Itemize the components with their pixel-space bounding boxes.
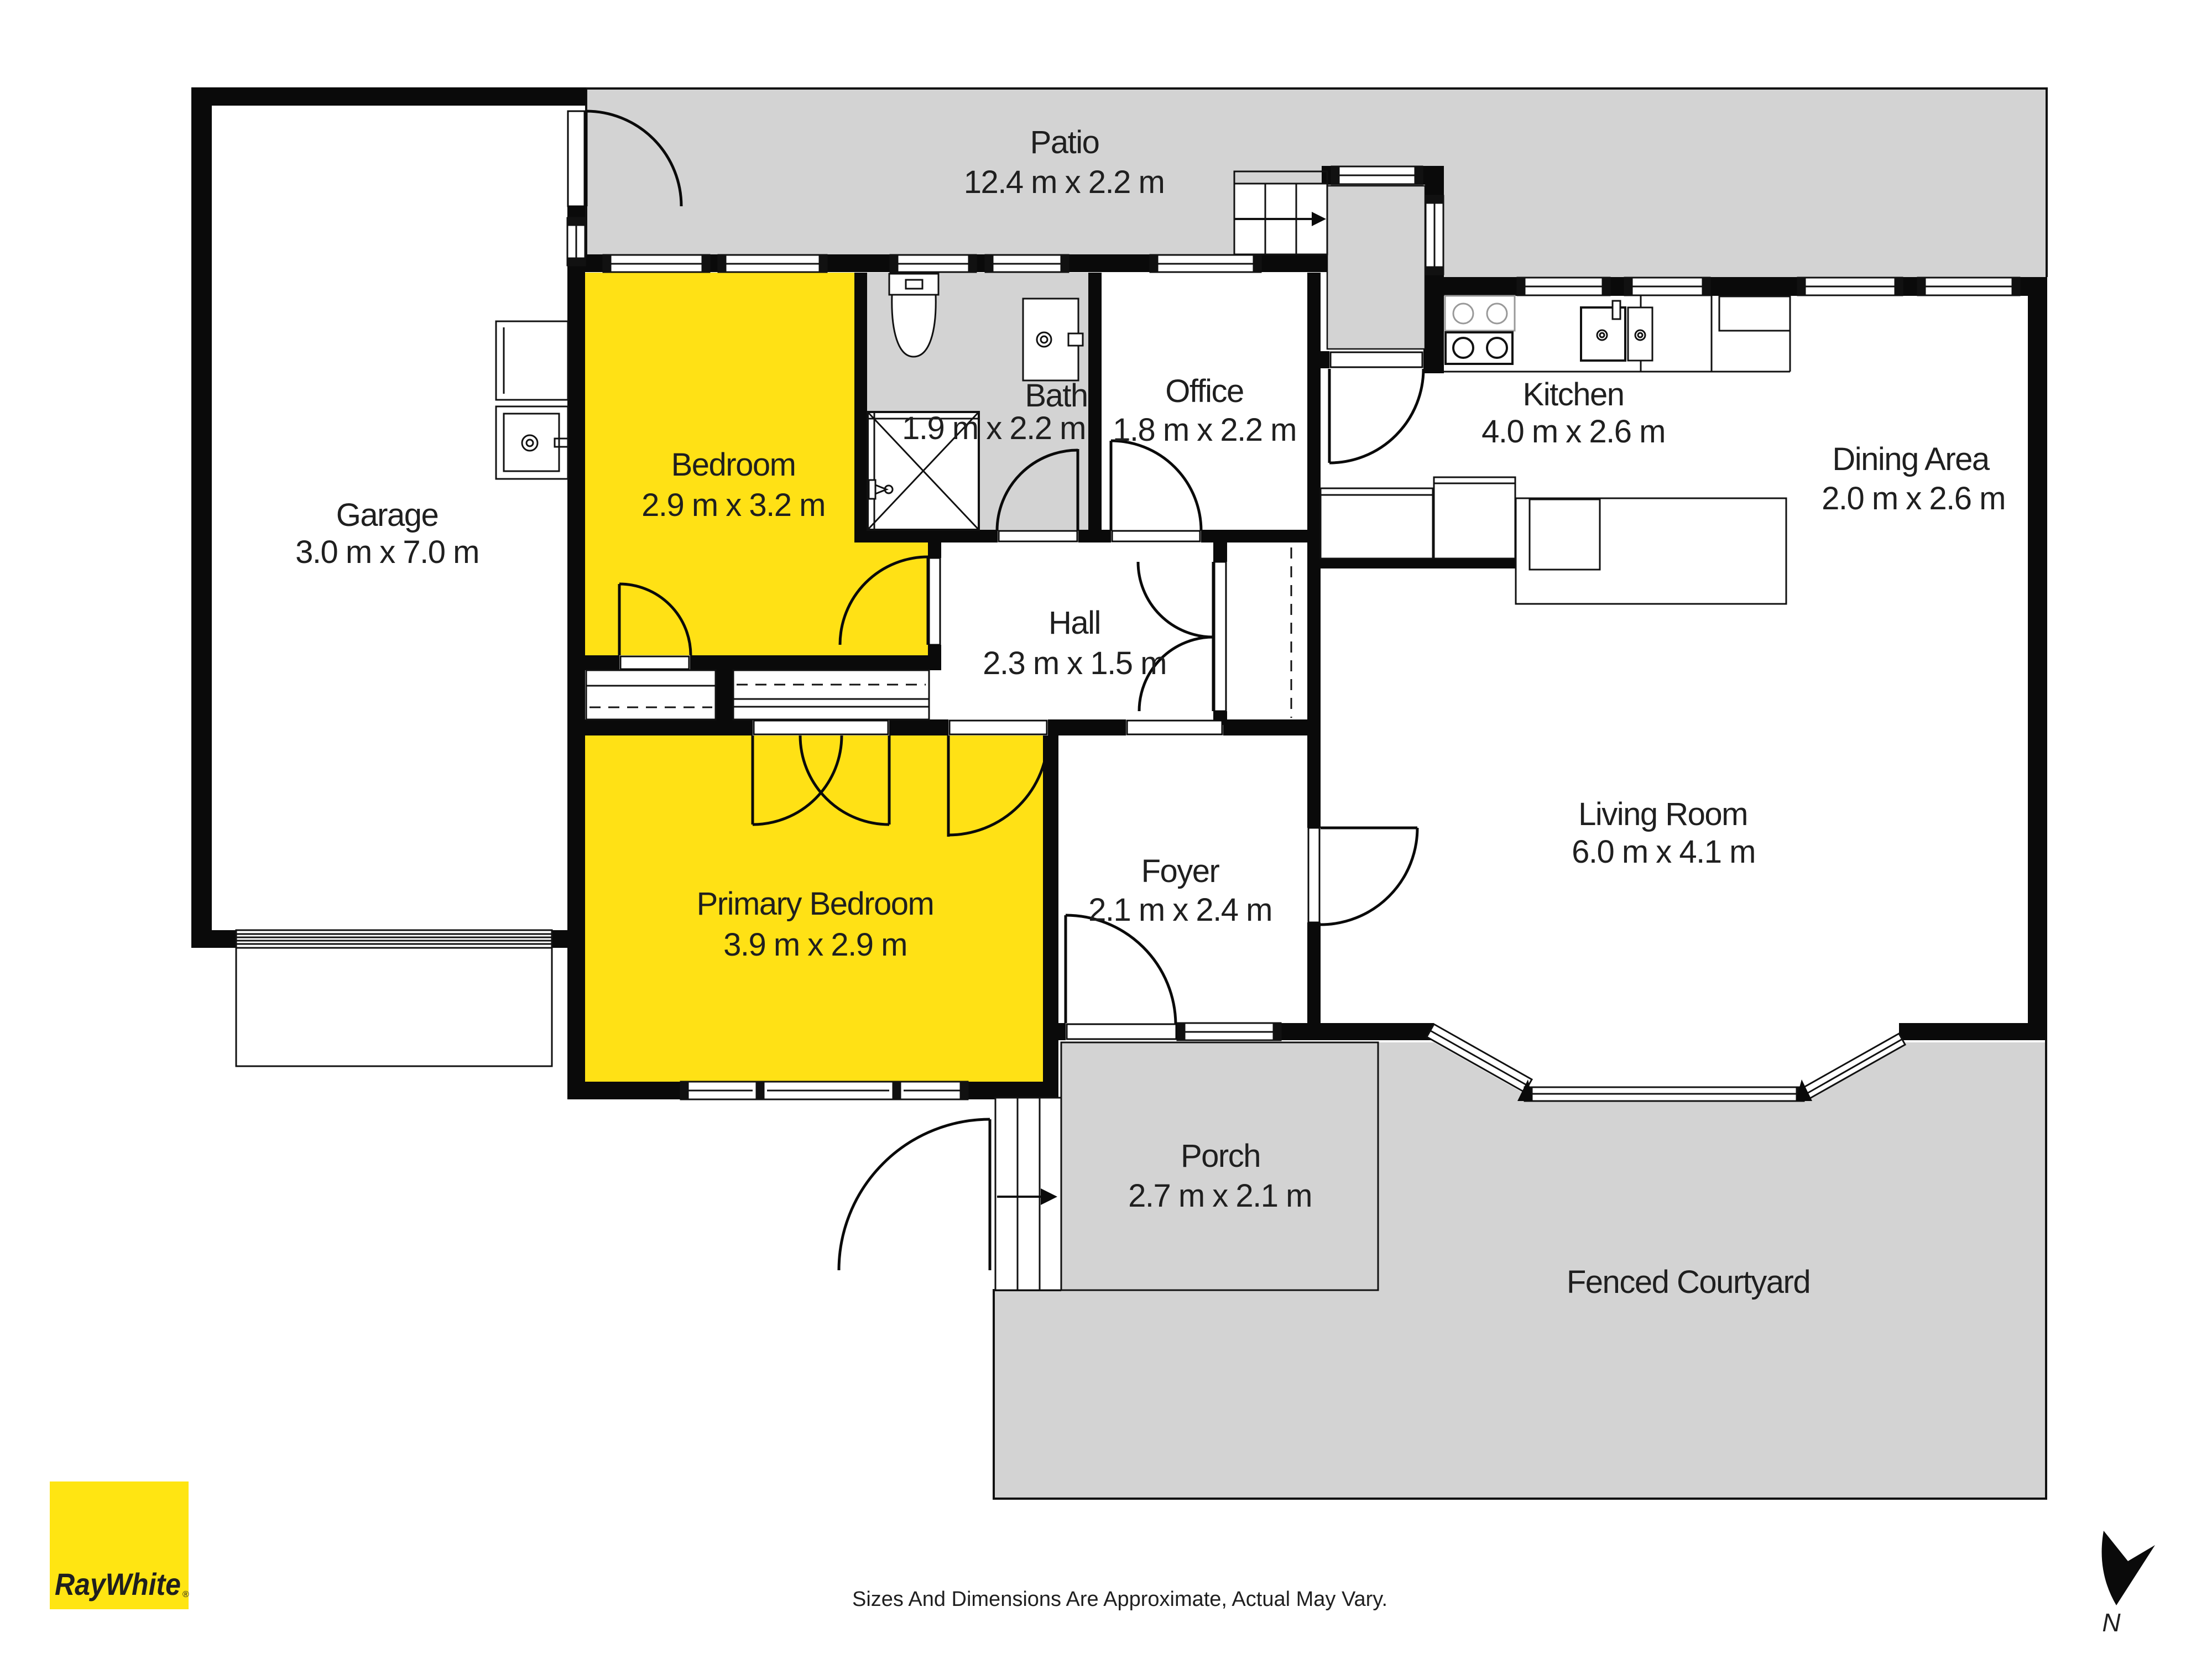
svg-text:1.9 m x 2.2 m: 1.9 m x 2.2 m	[902, 410, 1086, 446]
svg-text:Bedroom: Bedroom	[671, 447, 796, 483]
svg-text:Dining Area: Dining Area	[1832, 441, 1990, 477]
svg-text:2.0 m x 2.6 m: 2.0 m x 2.6 m	[1822, 481, 2005, 517]
svg-text:4.0 m x 2.6 m: 4.0 m x 2.6 m	[1481, 414, 1665, 450]
svg-text:12.4 m x 2.2 m: 12.4 m x 2.2 m	[964, 164, 1165, 200]
svg-text:3.0 m x 7.0 m: 3.0 m x 7.0 m	[295, 534, 479, 570]
svg-text:Office: Office	[1165, 373, 1243, 409]
svg-text:2.1 m x 2.4 m: 2.1 m x 2.4 m	[1088, 892, 1272, 928]
svg-text:Patio: Patio	[1030, 124, 1099, 160]
svg-text:Garage: Garage	[336, 497, 438, 533]
svg-text:Bath: Bath	[1025, 378, 1087, 414]
svg-text:Fenced Courtyard: Fenced Courtyard	[1567, 1264, 1810, 1300]
svg-text:2.9 m x 3.2 m: 2.9 m x 3.2 m	[641, 487, 825, 523]
svg-text:6.0 m x 4.1 m: 6.0 m x 4.1 m	[1572, 834, 1755, 870]
svg-text:1.8 m x 2.2 m: 1.8 m x 2.2 m	[1113, 412, 1296, 448]
svg-text:N: N	[2102, 1608, 2121, 1637]
svg-text:Porch: Porch	[1181, 1138, 1260, 1174]
svg-text:®: ®	[182, 1590, 189, 1599]
svg-text:3.9 m x 2.9 m: 3.9 m x 2.9 m	[723, 927, 907, 963]
svg-text:Kitchen: Kitchen	[1523, 377, 1624, 413]
svg-text:Hall: Hall	[1048, 605, 1100, 641]
svg-text:Foyer: Foyer	[1141, 853, 1220, 889]
svg-text:Sizes And Dimensions Are Appro: Sizes And Dimensions Are Approximate, Ac…	[852, 1588, 1387, 1611]
svg-text:RayWhite: RayWhite	[55, 1567, 181, 1601]
svg-text:2.7 m x 2.1 m: 2.7 m x 2.1 m	[1128, 1178, 1312, 1214]
svg-text:Primary Bedroom: Primary Bedroom	[697, 886, 934, 922]
svg-text:Living Room: Living Room	[1578, 796, 1747, 832]
svg-text:2.3 m x 1.5 m: 2.3 m x 1.5 m	[983, 645, 1166, 681]
